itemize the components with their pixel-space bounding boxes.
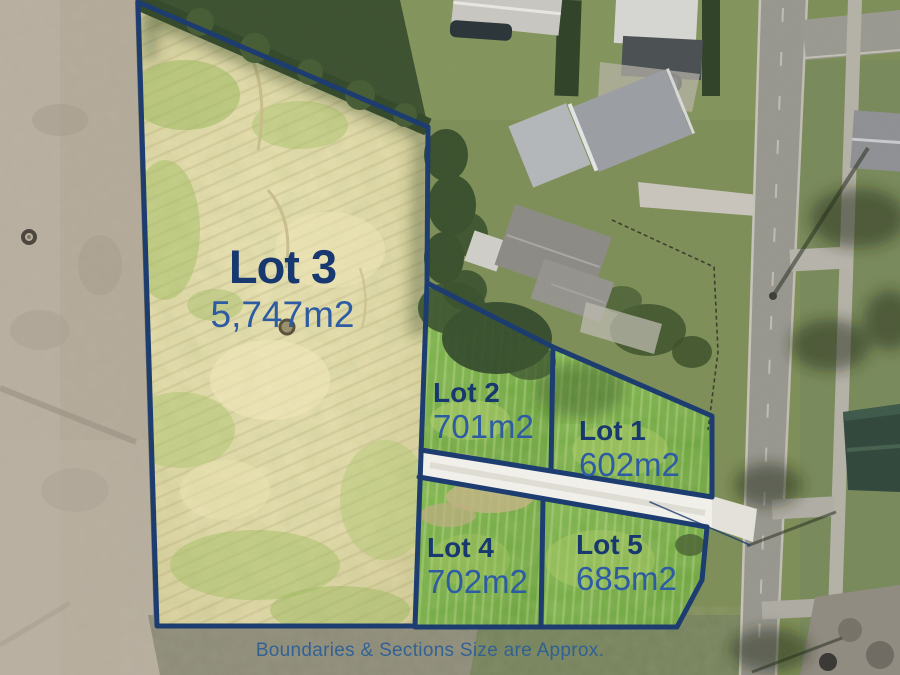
aerial-basemap bbox=[0, 0, 900, 675]
lot1-lot2-divider bbox=[551, 347, 553, 471]
disclaimer-caption: Boundaries & Sections Size are Approx. bbox=[250, 640, 610, 662]
photo-grain bbox=[0, 0, 900, 675]
lot4-lot5-divider bbox=[541, 500, 543, 627]
aerial-subdivision-plan: Lot 3 5,747m2 Lot 2 701m2 Lot 1 602m2 Lo… bbox=[0, 0, 900, 675]
